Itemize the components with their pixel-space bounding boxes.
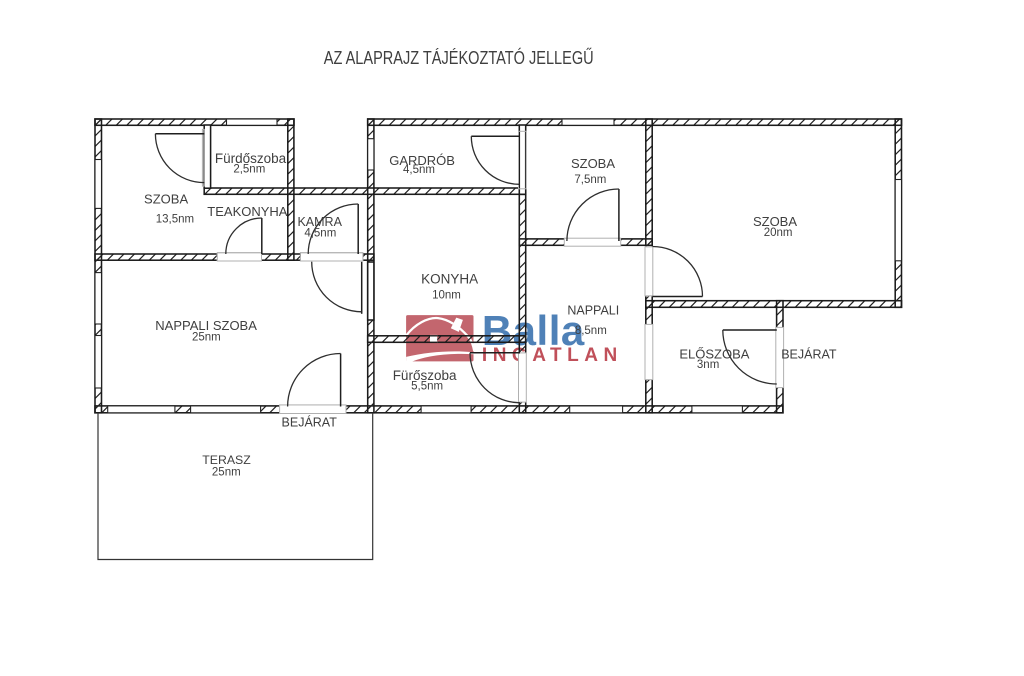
svg-text:25nm: 25nm (212, 466, 241, 478)
svg-text:7,5nm: 7,5nm (574, 174, 606, 186)
svg-text:KONYHA: KONYHA (421, 272, 478, 287)
svg-text:3nm: 3nm (697, 359, 719, 371)
svg-text:8,5nm: 8,5nm (575, 325, 607, 337)
svg-text:10nm: 10nm (432, 290, 461, 302)
svg-text:20nm: 20nm (764, 227, 793, 239)
svg-text:2,5nm: 2,5nm (233, 163, 265, 175)
svg-text:AZ ALAPRAJZ TÁJÉKOZTATÓ JELLEG: AZ ALAPRAJZ TÁJÉKOZTATÓ JELLEGŰ (324, 48, 594, 69)
svg-text:5,5nm: 5,5nm (411, 380, 443, 392)
svg-text:INGATLAN: INGATLAN (482, 345, 623, 366)
svg-text:25nm: 25nm (192, 331, 221, 343)
svg-text:4,5nm: 4,5nm (403, 164, 435, 176)
svg-text:4,5nm: 4,5nm (304, 228, 336, 240)
svg-text:TERASZ: TERASZ (202, 453, 251, 467)
svg-text:SZOBA: SZOBA (571, 156, 615, 171)
svg-text:SZOBA: SZOBA (144, 192, 188, 207)
svg-text:13,5nm: 13,5nm (156, 213, 194, 225)
svg-text:BEJÁRAT: BEJÁRAT (282, 415, 338, 430)
svg-text:TEAKONYHA: TEAKONYHA (207, 204, 288, 219)
svg-text:BEJÁRAT: BEJÁRAT (781, 347, 837, 362)
svg-text:NAPPALI: NAPPALI (567, 303, 619, 317)
